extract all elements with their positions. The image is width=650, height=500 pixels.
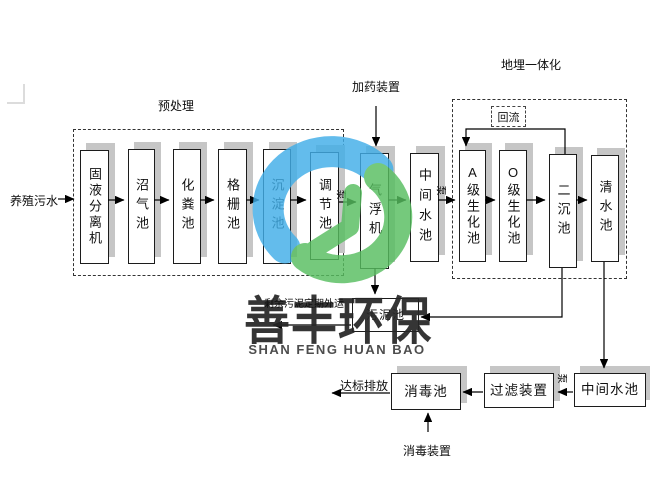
influent-label: 养殖污水 bbox=[10, 192, 58, 209]
discharge-label: 达标排放 bbox=[340, 377, 388, 394]
buried-integration-group-label: 地埋一体化 bbox=[501, 56, 561, 73]
pretreatment-group-label: 预处理 bbox=[158, 97, 194, 114]
flow-arrows-layer bbox=[0, 0, 650, 500]
disinfection-device-label: 消毒装置 bbox=[403, 442, 451, 459]
dosing-device-label: 加药装置 bbox=[352, 78, 400, 95]
arrow-reflux bbox=[466, 129, 565, 154]
watermark-en-text: SHAN FENG HUAN BAO bbox=[247, 342, 427, 357]
pump-label-2: 泵 bbox=[435, 186, 450, 196]
arrow-secondary-sludge bbox=[421, 268, 562, 317]
process-flow-diagram: 养殖污水 预处理 加药装置 地埋一体化 回流 泵 泵 泵 剩余污泥定期外运 达标… bbox=[0, 0, 650, 500]
pump-label-3: 泵 bbox=[556, 374, 571, 384]
pump-label-1: 泵 bbox=[335, 190, 350, 200]
sludge-export-label: 剩余污泥定期外运 bbox=[264, 295, 344, 310]
